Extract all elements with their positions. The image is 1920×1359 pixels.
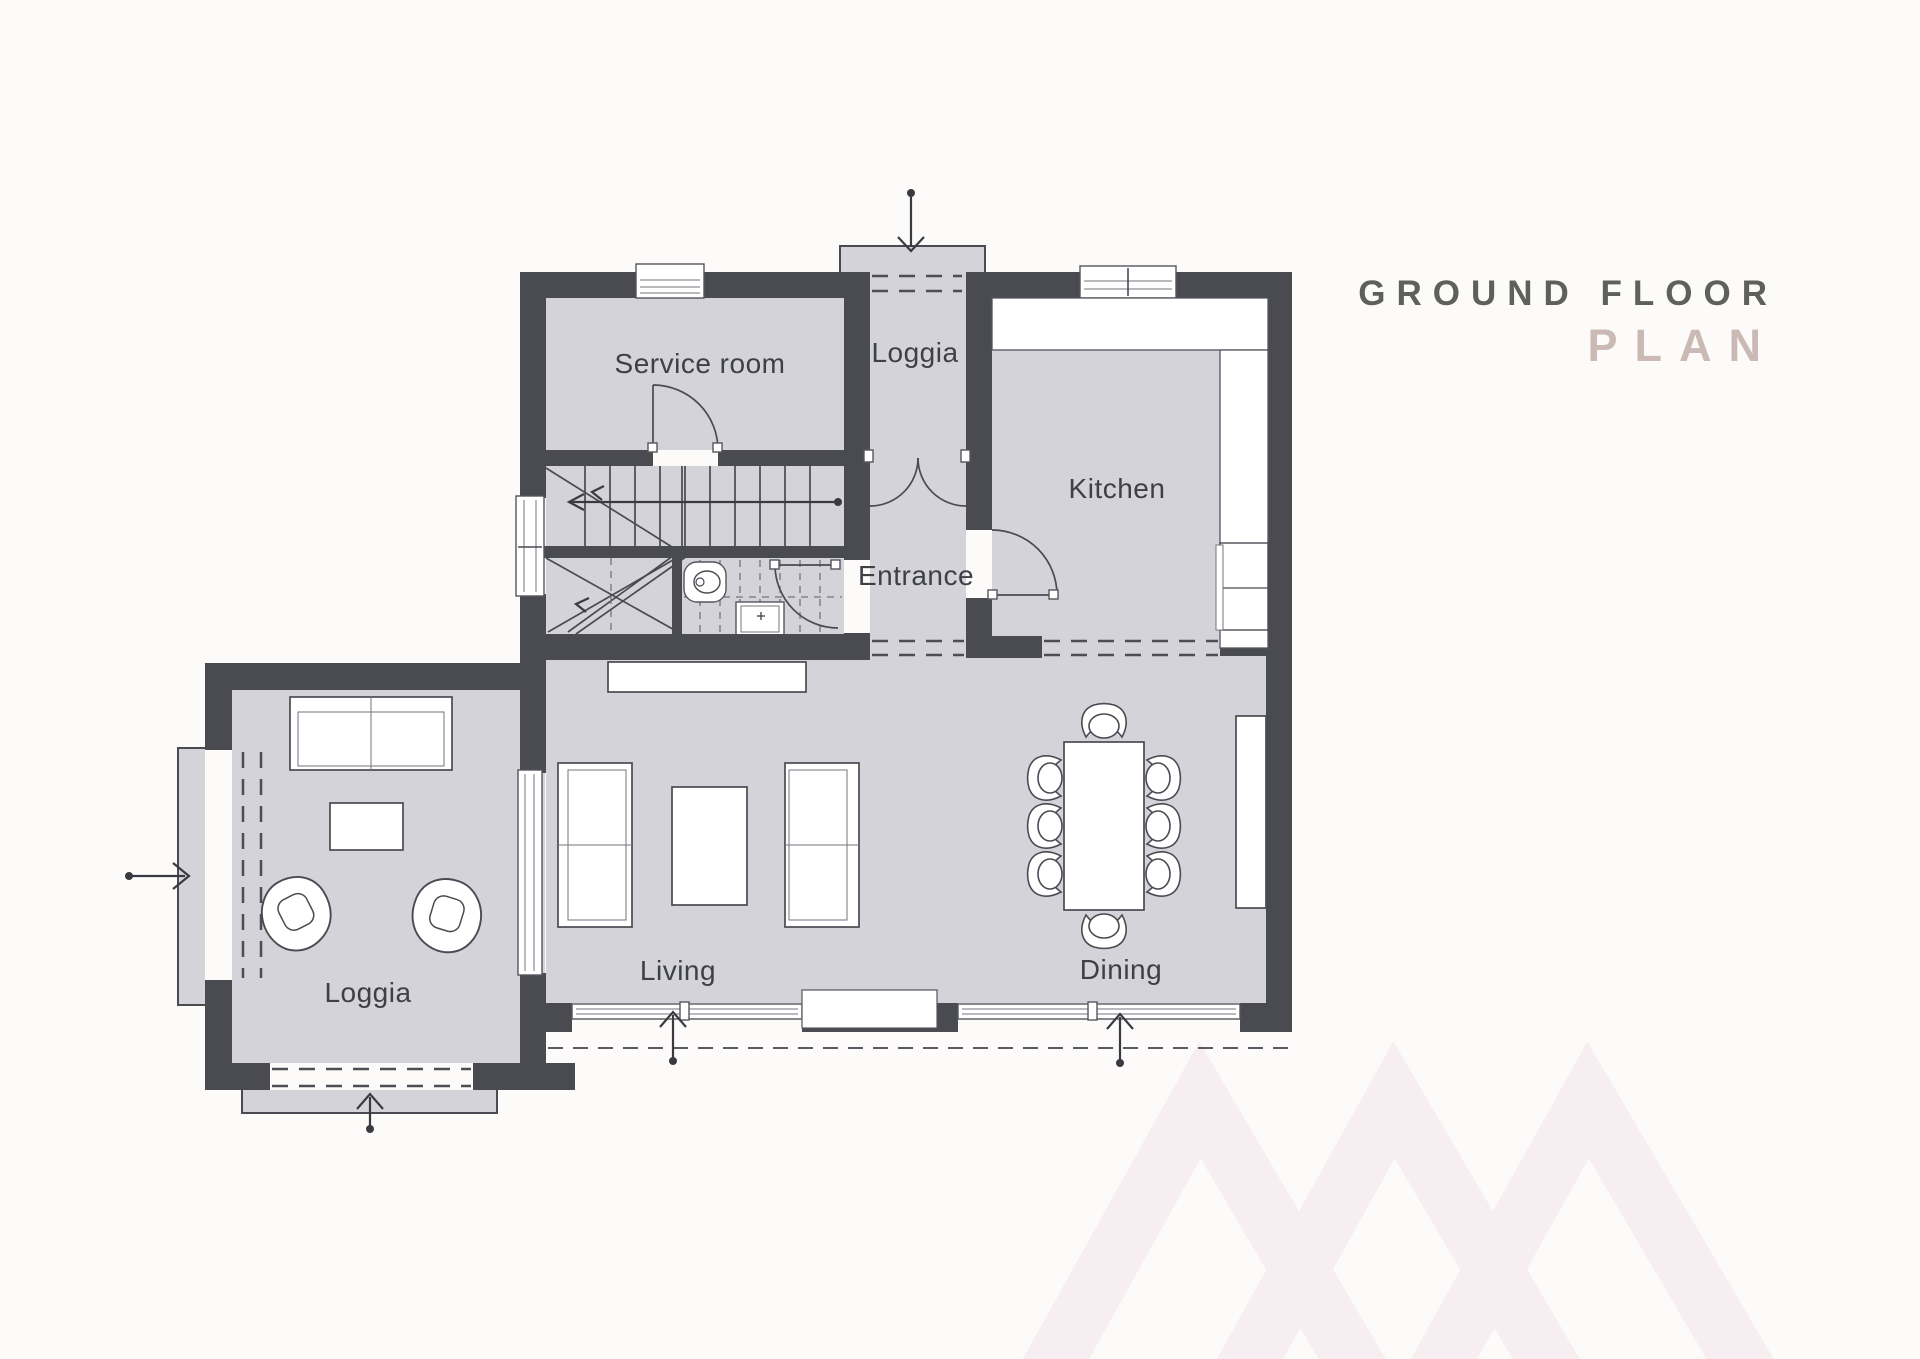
dining-sideboard	[1236, 716, 1266, 908]
toilet-icon	[684, 562, 726, 602]
living-window	[572, 1002, 802, 1020]
loggia-glass-wall	[518, 770, 542, 975]
entry-arrow-porch	[898, 189, 924, 251]
sofa-left-icon	[558, 763, 632, 927]
watermark-chevrons-icon	[1022, 1100, 1776, 1359]
floor-plan-drawing	[0, 0, 1920, 1359]
living-sideboard	[608, 662, 806, 692]
room-label-dining: Dining	[1080, 954, 1162, 986]
terrace-door	[802, 990, 937, 1028]
loggia-sofa-icon	[290, 697, 452, 770]
dining-window	[958, 1002, 1240, 1020]
entry-arrow-loggia-left	[125, 863, 189, 889]
sofa-right-icon	[785, 763, 859, 927]
loggia-coffee-table	[330, 803, 403, 850]
scanned-floor-plan-page: GROUND FLOOR PLAN Service room Loggia Ki…	[0, 0, 1920, 1359]
room-label-kitchen: Kitchen	[1069, 473, 1166, 505]
plan-subtitle: PLAN	[1588, 320, 1779, 372]
kitchen-window	[1080, 266, 1176, 298]
service-room-window	[636, 264, 704, 298]
room-label-loggia-top: Loggia	[871, 337, 958, 369]
room-label-entrance: Entrance	[858, 560, 974, 592]
room-label-loggia-side: Loggia	[324, 977, 411, 1009]
living-coffee-table	[672, 787, 747, 905]
dining-table	[1064, 742, 1144, 910]
plan-title: GROUND FLOOR	[1358, 274, 1778, 314]
entry-arrow-dining	[1107, 1014, 1133, 1067]
room-label-service-room: Service room	[615, 348, 786, 380]
fridge-icon	[1216, 543, 1268, 630]
stair-window	[516, 496, 544, 596]
room-label-living: Living	[640, 955, 716, 987]
